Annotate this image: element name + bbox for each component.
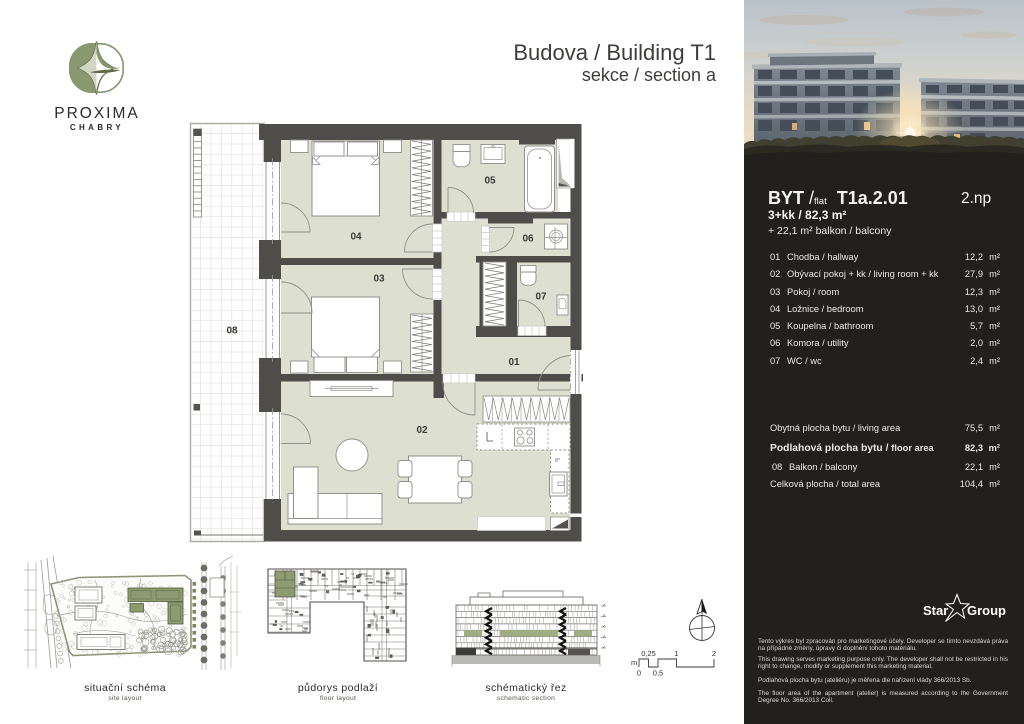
- svg-text:03: 03: [373, 274, 385, 285]
- svg-text:06: 06: [522, 234, 534, 245]
- svg-text:0: 0: [637, 669, 641, 678]
- svg-text:02: 02: [416, 425, 428, 436]
- svg-text:01: 01: [508, 357, 520, 368]
- svg-text:1: 1: [674, 649, 678, 658]
- svg-text:m: m: [631, 658, 637, 667]
- svg-text:0,25: 0,25: [641, 649, 656, 658]
- svg-text:08: 08: [226, 326, 238, 337]
- svg-text:04: 04: [350, 232, 362, 243]
- svg-text:07: 07: [535, 292, 547, 303]
- svg-text:0,5: 0,5: [653, 669, 663, 678]
- svg-text:05: 05: [484, 176, 496, 187]
- svg-text:2: 2: [712, 649, 716, 658]
